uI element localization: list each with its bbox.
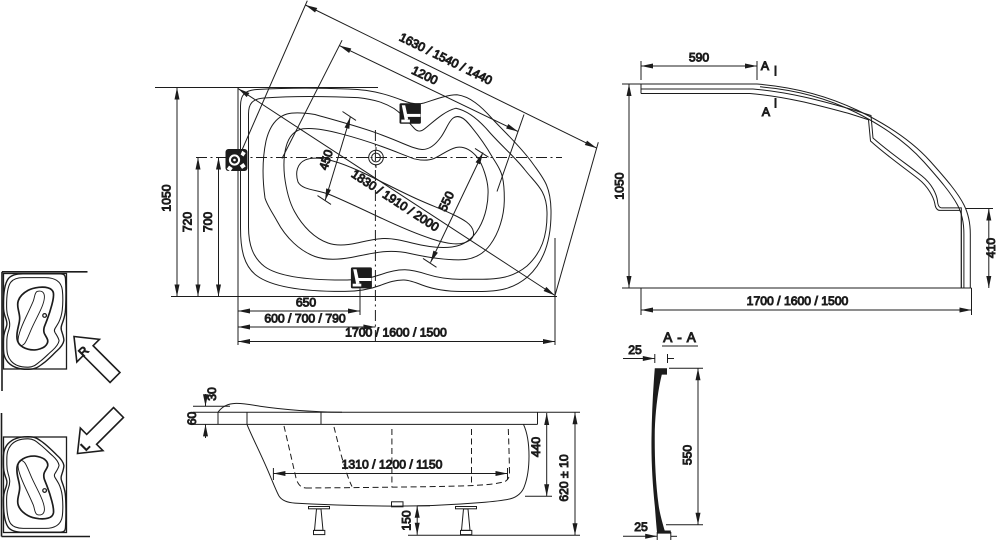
svg-text:A - A: A - A bbox=[663, 330, 697, 345]
svg-text:650: 650 bbox=[296, 296, 317, 310]
svg-text:600 / 700 / 790: 600 / 700 / 790 bbox=[264, 312, 346, 326]
svg-text:A: A bbox=[762, 105, 771, 119]
svg-text:1630 / 1540 / 1440: 1630 / 1540 / 1440 bbox=[397, 30, 495, 88]
svg-text:150: 150 bbox=[400, 510, 414, 531]
svg-text:450: 450 bbox=[317, 148, 336, 172]
svg-text:1200: 1200 bbox=[409, 63, 440, 87]
svg-text:620 ± 10: 620 ± 10 bbox=[557, 454, 571, 502]
svg-text:590: 590 bbox=[689, 51, 710, 65]
svg-text:1700 / 1600 / 1500: 1700 / 1600 / 1500 bbox=[747, 294, 849, 308]
svg-text:440: 440 bbox=[529, 437, 543, 458]
svg-text:25: 25 bbox=[628, 343, 642, 357]
svg-text:550: 550 bbox=[436, 189, 457, 214]
svg-text:410: 410 bbox=[984, 238, 998, 259]
svg-text:700: 700 bbox=[201, 212, 215, 233]
svg-text:1050: 1050 bbox=[613, 172, 627, 199]
svg-text:30: 30 bbox=[205, 387, 219, 401]
svg-text:720: 720 bbox=[181, 212, 195, 233]
svg-text:60: 60 bbox=[185, 412, 199, 426]
svg-text:1700 / 1600 / 1500: 1700 / 1600 / 1500 bbox=[345, 326, 447, 340]
svg-text:25: 25 bbox=[634, 520, 648, 534]
svg-text:A: A bbox=[761, 59, 770, 73]
svg-text:1050: 1050 bbox=[160, 184, 174, 211]
svg-text:550: 550 bbox=[681, 445, 695, 466]
